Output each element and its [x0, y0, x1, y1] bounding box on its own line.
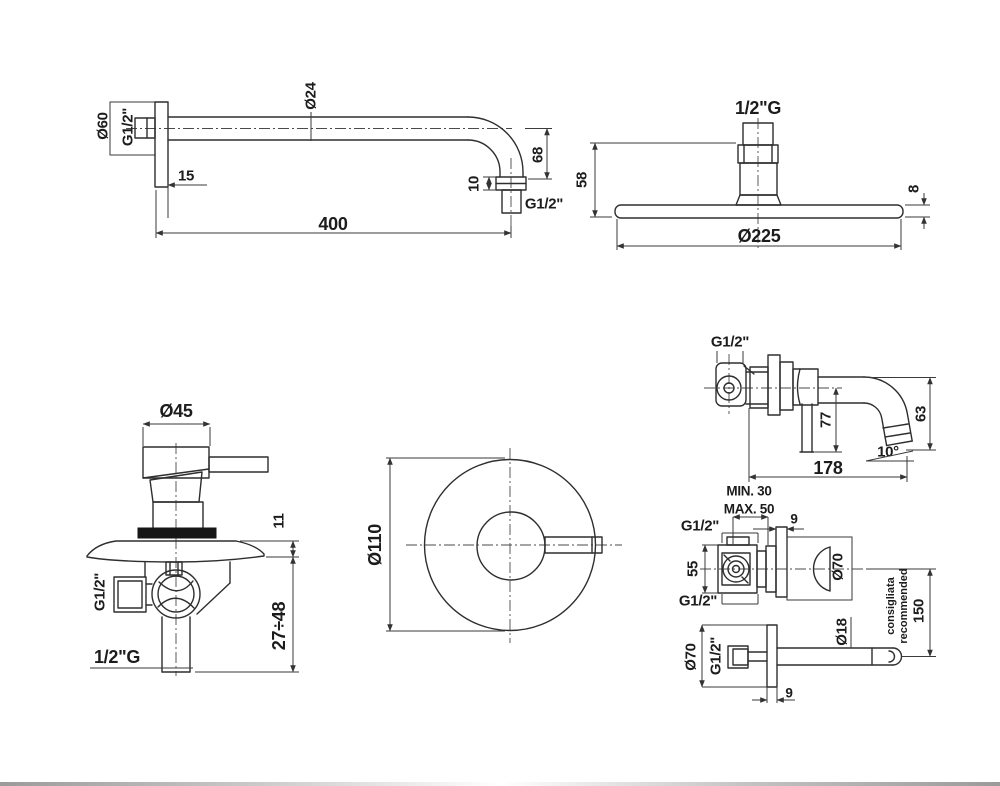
arm-bend-inner — [468, 140, 500, 177]
shower-arm-drawing: Ø60 G1/2" Ø24 15 68 10 G1/2" 400 — [95, 81, 564, 238]
dim-drop-outlet: 63 — [913, 406, 930, 422]
arm-wall-flange — [155, 102, 168, 187]
valve-side-drawing: MIN. 30 MAX. 50 9 Ø70 G1/2" G1/2" — [679, 484, 868, 610]
mixer-plate-seal — [138, 528, 216, 538]
head-plate — [615, 205, 903, 218]
mixer-handle-base-circle — [477, 512, 545, 580]
dim-wall-thread: G1/2" — [120, 108, 137, 146]
dim-valve-plate-diameter: Ø70 — [830, 553, 847, 580]
dim-valve-plate-thickness: 9 — [790, 512, 797, 527]
dim-mixer-bottom-thread: 1/2"G — [94, 647, 140, 667]
note-recommended: recommended — [898, 568, 910, 643]
dim-nut-height: 10 — [466, 176, 483, 192]
drawing-canvas: Ø60 G1/2" Ø24 15 68 10 G1/2" 400 1/2"G — [0, 0, 1000, 786]
spout-side-drawing: Ø70 G1/2" 9 Ø18 150 consigliata recommen… — [683, 568, 937, 703]
dim-plate-diameter: Ø110 — [365, 524, 385, 566]
mixer-side-drawing: Ø45 G1/2" 1/2"G 11 — [87, 401, 299, 676]
dim-tube-diameter: Ø18 — [834, 618, 851, 645]
dim-spout-thread: G1/2" — [711, 334, 749, 351]
dim-valve-bottom-thread: G1/2" — [679, 593, 717, 610]
dim-plate-thickness: 8 — [906, 185, 923, 193]
dim-valve-top-thread: G1/2" — [681, 518, 719, 535]
dim-flange-diameter: Ø60 — [95, 112, 112, 139]
dim-spout-flange-diameter: Ø70 — [683, 643, 700, 670]
dim-drop-height: 68 — [530, 147, 547, 163]
dim-plate-offset: 11 — [271, 513, 288, 528]
dim-head-diameter: Ø225 — [738, 226, 781, 246]
note-consigliata: consigliata — [885, 576, 897, 634]
dim-head-height: 58 — [574, 172, 591, 188]
wall-spout-drawing: G1/2" 77 63 10° — [704, 334, 936, 483]
dim-valve-body-height: 55 — [685, 561, 702, 577]
dim-handle-diameter: Ø45 — [159, 401, 192, 421]
spout-flange-plate — [767, 625, 777, 687]
arm-wall-connector — [135, 118, 155, 138]
dim-flange-offset: 15 — [178, 168, 194, 185]
mixer-front-drawing: Ø110 — [365, 448, 622, 643]
dim-recess-max: MAX. 50 — [724, 502, 774, 517]
mixer-wall-plate — [87, 541, 264, 562]
dim-arm-diameter: Ø24 — [303, 81, 320, 109]
arm-bend-outer — [468, 117, 523, 177]
technical-drawing-sheet: Ø60 G1/2" Ø24 15 68 10 G1/2" 400 1/2"G — [0, 0, 1000, 786]
page-bottom-edge — [0, 782, 1000, 786]
dim-drop-center: 77 — [818, 412, 835, 428]
dim-mixer-side-thread: G1/2" — [92, 573, 109, 611]
spout-wall-flange — [768, 355, 780, 415]
dim-spout-reach: 178 — [813, 458, 842, 478]
mixer-side-port — [114, 577, 146, 612]
valve-wall-plate — [776, 527, 787, 597]
dim-arm-length: 400 — [318, 214, 347, 234]
dim-spout-side-thread: G1/2" — [708, 637, 725, 675]
dim-end-thread: G1/2" — [525, 196, 563, 213]
head-stem — [740, 163, 777, 195]
arm-end-fitting — [502, 190, 521, 213]
dim-recess-min: MIN. 30 — [726, 484, 771, 499]
shower-head-drawing: 1/2"G 58 8 Ø225 — [574, 98, 931, 250]
dim-recess-depth: 27÷48 — [269, 602, 289, 651]
dim-recommended-distance: 150 — [911, 599, 928, 623]
spout-curve-inner — [864, 403, 887, 446]
dim-spout-plate-thickness: 9 — [785, 686, 792, 701]
dim-head-thread: 1/2"G — [735, 98, 781, 118]
spout-curve-outer — [864, 377, 912, 441]
mixer-handle-lever — [209, 457, 268, 472]
